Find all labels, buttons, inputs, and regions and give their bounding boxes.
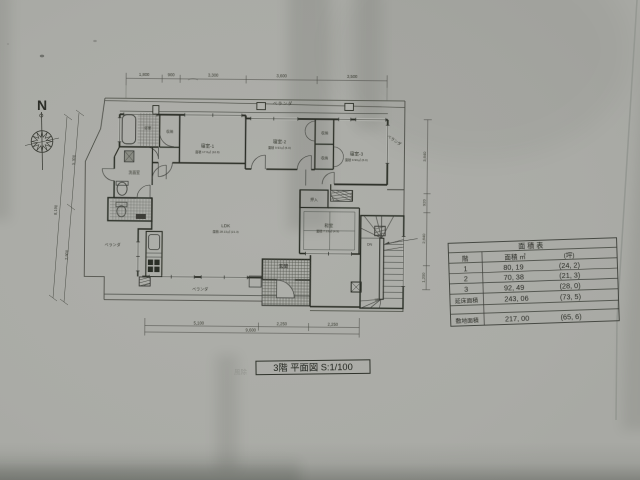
svg-text:5,300: 5,300 bbox=[71, 154, 77, 165]
svg-text:寝室-1: 寝室-1 bbox=[201, 143, 215, 149]
svg-text:風除: 風除 bbox=[234, 367, 248, 376]
svg-text:(坪): (坪) bbox=[564, 251, 575, 259]
svg-text:3,640: 3,640 bbox=[422, 151, 427, 162]
svg-text:面積 28.13㎡ (21.3): 面積 28.13㎡ (21.3) bbox=[213, 229, 239, 234]
svg-text:8,190: 8,190 bbox=[53, 204, 59, 215]
svg-text:2,250: 2,250 bbox=[328, 322, 339, 327]
svg-text:9,600: 9,600 bbox=[245, 327, 256, 332]
svg-text:洗面室: 洗面室 bbox=[129, 170, 141, 175]
svg-text:LDK: LDK bbox=[221, 223, 231, 228]
svg-text:3,600: 3,600 bbox=[276, 73, 287, 78]
svg-text:面積 9.93㎡ (6.0): 面積 9.93㎡ (6.0) bbox=[345, 157, 368, 162]
svg-text:ベランダ: ベランダ bbox=[192, 285, 208, 291]
svg-text:面積 9.93㎡ (6.0): 面積 9.93㎡ (6.0) bbox=[268, 145, 291, 150]
svg-text:(28, 0): (28, 0) bbox=[559, 281, 580, 291]
svg-text:217, 00: 217, 00 bbox=[505, 313, 530, 323]
svg-text:(24, 2): (24, 2) bbox=[559, 260, 580, 270]
svg-text:900: 900 bbox=[168, 72, 176, 77]
svg-text:(65, 6): (65, 6) bbox=[560, 312, 581, 322]
svg-text:ベランダ: ベランダ bbox=[105, 241, 121, 247]
svg-text:収納: 収納 bbox=[321, 130, 329, 135]
svg-text:2,900: 2,900 bbox=[64, 249, 70, 260]
svg-text:80, 19: 80, 19 bbox=[503, 262, 524, 272]
svg-text:2,640: 2,640 bbox=[421, 233, 426, 244]
svg-text:3,300: 3,300 bbox=[208, 73, 219, 78]
svg-text:2,250: 2,250 bbox=[277, 321, 288, 326]
svg-text:階: 階 bbox=[462, 253, 469, 262]
svg-text:1,200: 1,200 bbox=[421, 272, 426, 283]
svg-text:DN: DN bbox=[367, 243, 373, 247]
svg-text:920: 920 bbox=[421, 199, 426, 206]
svg-text:(73, 5): (73, 5) bbox=[560, 292, 581, 302]
svg-text:70, 38: 70, 38 bbox=[503, 272, 524, 282]
svg-text:押入: 押入 bbox=[310, 197, 318, 202]
svg-text:面積 17.6㎡ (10.8): 面積 17.6㎡ (10.8) bbox=[195, 149, 219, 154]
svg-text:寝室-2: 寝室-2 bbox=[273, 138, 287, 144]
svg-text:243, 06: 243, 06 bbox=[504, 293, 529, 303]
svg-text:3階 平面図 S:1/100: 3階 平面図 S:1/100 bbox=[273, 362, 353, 373]
svg-text:2: 2 bbox=[464, 274, 468, 283]
svg-text:3: 3 bbox=[464, 285, 468, 294]
svg-text:浴室: 浴室 bbox=[144, 125, 152, 130]
svg-text:寝室-3: 寝室-3 bbox=[350, 150, 364, 156]
svg-text:1,800: 1,800 bbox=[139, 72, 150, 77]
svg-text:92, 49: 92, 49 bbox=[504, 283, 525, 293]
svg-text:N: N bbox=[37, 97, 47, 113]
svg-text:5,100: 5,100 bbox=[194, 320, 205, 325]
svg-text:UP: UP bbox=[375, 298, 381, 302]
svg-text:3,500: 3,500 bbox=[347, 74, 358, 79]
svg-text:1: 1 bbox=[463, 264, 467, 273]
svg-text:(21, 3): (21, 3) bbox=[559, 271, 580, 281]
svg-text:収納: 収納 bbox=[321, 155, 329, 160]
svg-text:収納: 収納 bbox=[166, 129, 174, 134]
svg-text:面積 7.13㎡ (4.9): 面積 7.13㎡ (4.9) bbox=[316, 228, 339, 233]
